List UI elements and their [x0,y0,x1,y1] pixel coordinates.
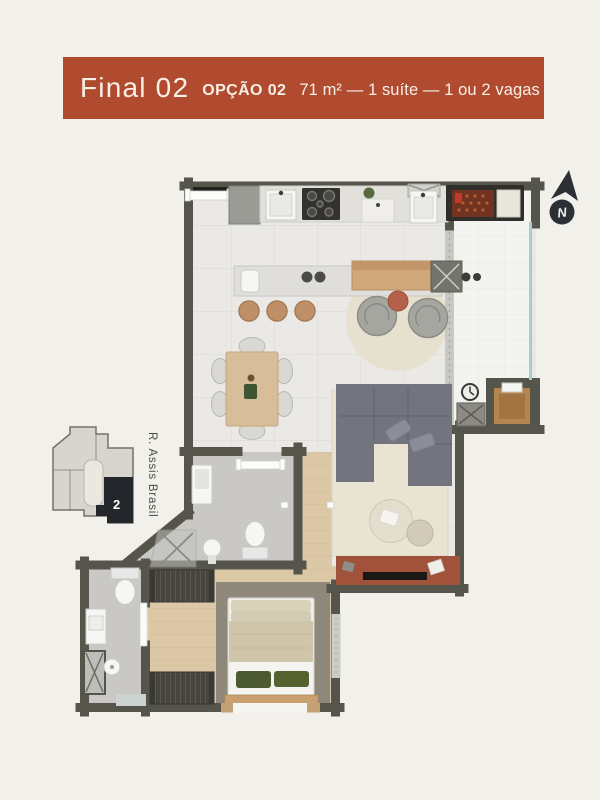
island-knob [302,272,313,283]
hallway-wood-floor [298,452,332,572]
compass-north-icon: N [550,170,579,225]
window-post [307,703,320,713]
bath-mat [116,694,146,706]
compass-arrow [551,170,578,201]
suite-bath-door-leaf [140,603,147,646]
vanity-basin [89,616,103,630]
wardrobe-end [209,672,214,704]
service-niche-shade [499,394,525,419]
plant-icon [364,188,375,199]
round-side-table [388,291,408,311]
floor-plan-svg: 2 R. Assis Brasil N [0,0,600,800]
shower-head-dot [110,665,114,669]
bed-bench [225,695,318,704]
prep-board [362,199,394,222]
bowl [248,375,255,382]
bed-pillow-row [231,611,311,622]
faucet-icon [279,191,283,195]
street-label: R. Assis Brasil [146,432,158,518]
toilet-tank [111,568,139,579]
grill-tray [497,190,520,217]
armchair [409,299,448,338]
building-core [84,460,103,506]
vase [473,273,481,281]
wardrobe-end [150,672,155,704]
shower-inner [195,469,209,489]
toilet-bowl [245,522,265,547]
barbecue-grill [446,185,524,221]
page: Final 02 OPÇÃO 02 71 m² — 1 suíte — 1 ou… [0,0,600,800]
sink-basin [270,194,292,216]
door-jamb [280,459,285,470]
coffee-table-small [407,520,433,546]
kettle [241,270,259,292]
wardrobe [150,672,214,704]
island-knob [315,272,326,283]
vase [462,273,471,282]
door-jamb [327,502,334,508]
table-plant [244,384,257,399]
toilet-tank [242,547,268,559]
board-knob [376,203,380,207]
door-jamb [281,502,288,508]
laundry-basin [414,197,433,218]
window-post [221,703,233,713]
stools [239,301,315,321]
niche-item [502,383,522,392]
bath-door-leaf [239,461,283,469]
fridge [229,186,260,224]
door-cap [185,189,190,201]
bench-back [352,261,440,270]
entry-door-leaf [187,191,231,200]
bed-pillow-row [231,600,311,612]
wardrobe-end [150,570,155,602]
grill-tool [455,193,462,203]
wardrobe [150,570,214,602]
pedestal-sink [203,539,221,557]
unit-number: 2 [113,497,120,512]
green-pillow [236,671,271,688]
tv [363,572,427,580]
door-jamb [236,459,241,470]
faucet-icon [421,193,425,197]
toilet-bowl [115,580,135,605]
green-pillow [274,671,309,687]
duvet [229,621,313,663]
sheet-edge [229,692,313,695]
wardrobe-end [209,570,214,602]
keyplan: 2 R. Assis Brasil [53,427,158,523]
sink-stem [208,555,216,564]
bedroom-window [233,703,307,713]
